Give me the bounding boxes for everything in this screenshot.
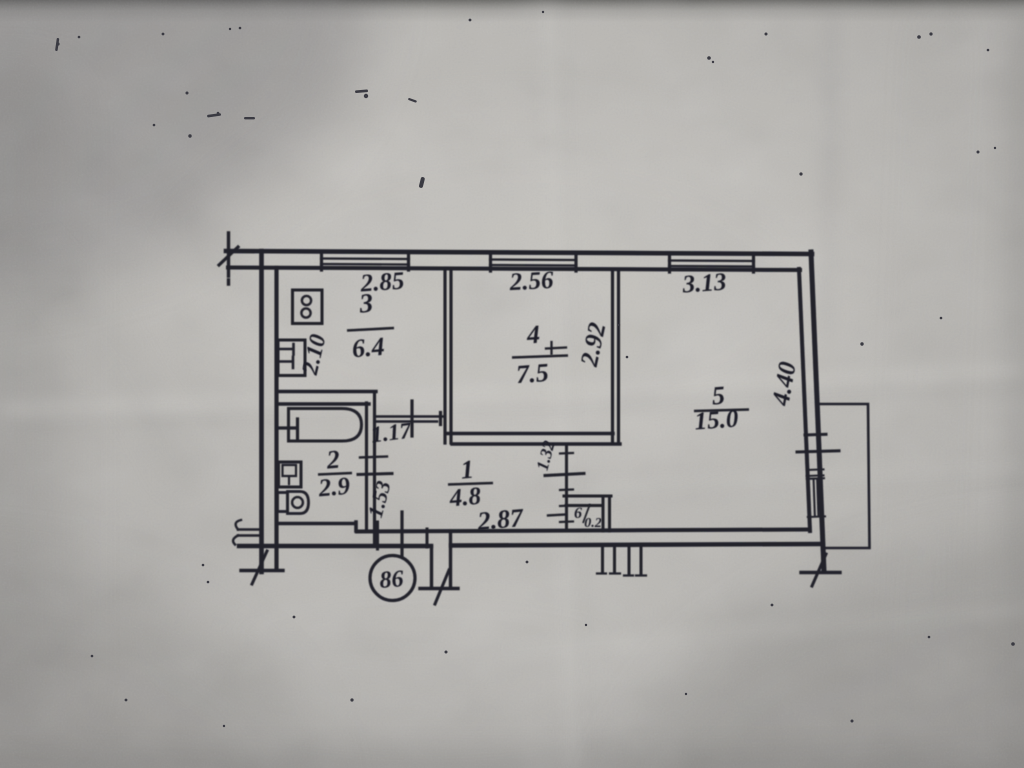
svg-text:2.9: 2.9 <box>317 473 352 503</box>
svg-text:15.0: 15.0 <box>694 405 740 435</box>
svg-text:0.2: 0.2 <box>584 516 602 531</box>
svg-text:4: 4 <box>525 320 541 350</box>
svg-text:1.17: 1.17 <box>370 418 414 448</box>
svg-text:86: 86 <box>379 566 405 594</box>
svg-text:2: 2 <box>325 445 341 475</box>
svg-text:7.5: 7.5 <box>515 358 549 389</box>
svg-text:6.4: 6.4 <box>351 332 386 364</box>
svg-text:3: 3 <box>357 288 374 319</box>
svg-text:3.13: 3.13 <box>681 269 728 299</box>
svg-text:1: 1 <box>460 455 475 485</box>
svg-text:2.56: 2.56 <box>508 267 555 296</box>
svg-text:6: 6 <box>574 505 582 522</box>
svg-text:2.87: 2.87 <box>475 503 525 536</box>
